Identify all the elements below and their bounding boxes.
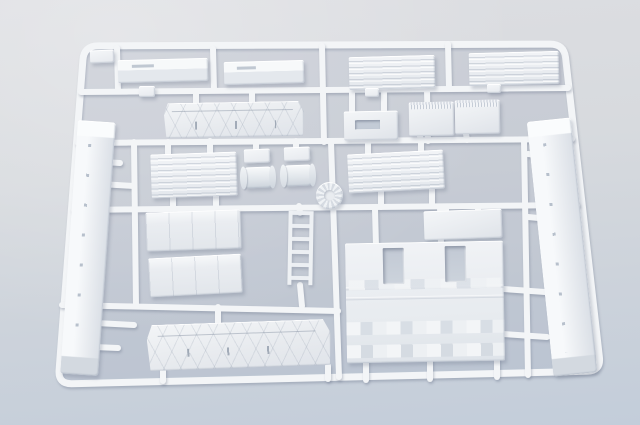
hull-rail-right xyxy=(527,117,598,376)
window-cutout-a xyxy=(383,248,405,284)
sprue-photo xyxy=(0,0,640,425)
roller-drum-a xyxy=(242,166,275,188)
mount-tab-b xyxy=(365,88,379,97)
truss-panel-a xyxy=(164,101,305,138)
window-cutout-b xyxy=(445,246,467,282)
engine-bulkhead xyxy=(345,241,505,364)
mount-tab-a xyxy=(139,86,155,97)
flat-strip-b xyxy=(224,60,305,85)
molded-parts-layer xyxy=(0,0,640,425)
ladder xyxy=(287,211,313,285)
tee-fitting-a xyxy=(244,149,270,164)
tee-fitting-b xyxy=(284,147,310,162)
ribbed-box-b xyxy=(455,100,501,135)
side-box-a xyxy=(145,209,241,251)
hull-rail-left xyxy=(60,120,116,376)
idler-wheel xyxy=(316,182,343,209)
ribbed-box-a xyxy=(409,102,455,137)
truss-panel-b xyxy=(146,319,331,371)
vent-deck-b xyxy=(469,51,560,86)
side-box-b xyxy=(148,254,243,298)
mount-tab-c xyxy=(487,84,501,93)
flat-strip-a xyxy=(118,58,209,83)
vent-deck-a xyxy=(349,55,436,90)
corner-tab xyxy=(90,50,114,64)
roof-plate xyxy=(424,209,503,241)
vent-panel-long xyxy=(347,150,445,194)
recess-plate xyxy=(344,111,398,141)
louver-box xyxy=(150,152,237,199)
roller-drum-b xyxy=(282,164,315,186)
